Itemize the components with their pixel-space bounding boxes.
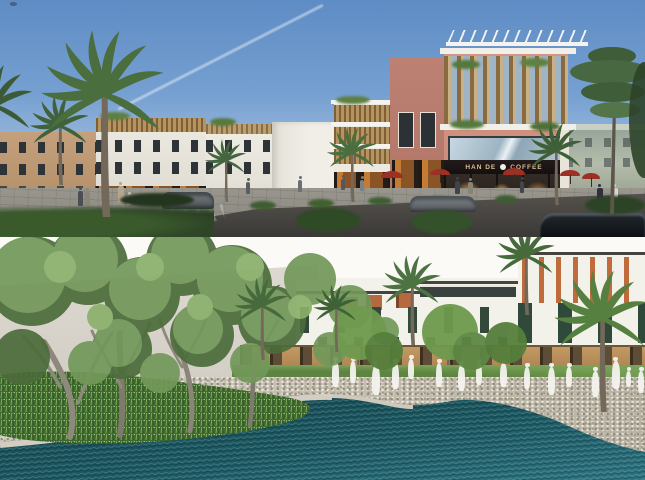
pool-landscape-panel — [0, 237, 645, 480]
palm-tree — [528, 122, 583, 205]
palm-tree — [496, 237, 556, 315]
palm-tree — [205, 139, 247, 202]
palm-tree — [327, 127, 377, 202]
rendering-collage: HAN DE COFFEE — [0, 0, 645, 480]
street-view-panel: HAN DE COFFEE — [0, 0, 645, 237]
street-trees-layer — [0, 0, 645, 237]
palm-tree — [0, 64, 34, 184]
pool-and-trees-layer — [0, 237, 645, 480]
palm-tree-large — [554, 269, 645, 412]
courtyard-trees — [333, 304, 527, 370]
